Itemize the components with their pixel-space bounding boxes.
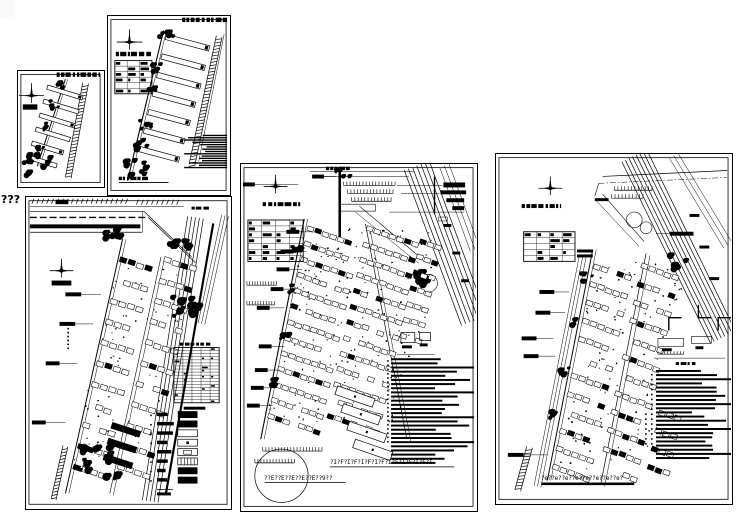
building [43, 99, 79, 114]
title-underline [541, 483, 634, 486]
cad-box [312, 175, 324, 179]
building [152, 91, 196, 108]
leader-label [259, 344, 272, 348]
tree-cluster [123, 158, 150, 179]
cad-box [157, 492, 171, 495]
cad-box [443, 224, 451, 227]
detail-corner [669, 318, 682, 331]
leader-label [539, 290, 554, 294]
leader-label [522, 336, 537, 340]
drawing-title [119, 177, 148, 180]
plan-title [116, 52, 151, 56]
leader-label [32, 421, 46, 425]
tree-cluster [667, 252, 689, 272]
cad-line [69, 239, 126, 493]
detail-label [440, 190, 466, 194]
plan-title [522, 204, 561, 208]
sheet-site-plan-right[interactable] [495, 153, 733, 505]
plan-title [263, 202, 301, 206]
cad-box [56, 200, 69, 204]
building [156, 72, 201, 89]
leader-label [535, 311, 550, 315]
sheet-site-plan-right-drawing [496, 154, 731, 503]
north-arrow-icon [19, 83, 44, 103]
cad-vdots [651, 374, 653, 450]
cad-line [603, 194, 644, 241]
notes-title [676, 362, 696, 365]
cad-rect [658, 338, 684, 346]
north-arrow-icon [264, 175, 288, 194]
cad-box [402, 345, 412, 348]
cad-rect [420, 333, 431, 341]
parking-row [344, 181, 395, 185]
cad-box [577, 250, 593, 253]
building [139, 146, 180, 162]
cad-ticks [263, 447, 322, 451]
cad-trees [548, 409, 558, 420]
cad-vdots [67, 328, 69, 349]
cad-rect [340, 204, 376, 211]
stray-text: ??? [1, 193, 20, 206]
cad-box [662, 348, 672, 351]
cad-band [198, 215, 228, 325]
detail-label [446, 198, 464, 202]
parking-row [352, 197, 391, 201]
leader-label [60, 322, 76, 326]
cad-box [243, 182, 255, 186]
scale-label [52, 281, 72, 286]
cad-ticks [247, 281, 277, 285]
building [148, 109, 191, 125]
cad-speckle [74, 268, 186, 466]
cad-line [597, 201, 639, 246]
cad-ticks [247, 301, 275, 305]
building [35, 127, 70, 142]
cad-box [184, 407, 206, 410]
inner-border [499, 158, 728, 500]
cad-box [420, 343, 428, 346]
leader-label [46, 361, 60, 365]
leader-label [508, 453, 524, 457]
detail-corner [698, 305, 711, 318]
building [143, 128, 185, 144]
cad-vdots [645, 413, 647, 444]
cad-dash [192, 207, 209, 210]
sheet-utility-plan-medium-drawing [108, 16, 229, 194]
cad-drawing-workspace: ??? ?I?F?I?F?I?F?I?F?I?F?I?F?I?F?I ??E??… [0, 0, 749, 530]
cad-box [695, 346, 703, 349]
building-outline [353, 439, 393, 460]
leader-label [255, 368, 268, 372]
parking-row [614, 186, 652, 190]
cad-box [699, 246, 709, 249]
cad-rect [692, 336, 712, 343]
leader-label [271, 287, 284, 291]
cad-vdots [387, 360, 389, 442]
cad-speckle [560, 262, 682, 471]
cad-line [595, 183, 599, 196]
sheet-utility-plan-small[interactable] [17, 70, 105, 188]
legend-table [524, 232, 575, 262]
detail-corner [718, 318, 731, 331]
cad-line [547, 250, 592, 481]
scale-label [23, 104, 37, 109]
cad-box [452, 252, 460, 255]
north-arrow-icon [50, 259, 74, 278]
legend-table [115, 61, 152, 94]
cad-box [690, 214, 700, 217]
road-bar [30, 224, 140, 228]
cad-line [603, 171, 727, 177]
leader-label [670, 232, 694, 236]
sheet-site-plan-left[interactable] [25, 196, 232, 510]
leader-label [277, 267, 290, 271]
sheet-utility-plan-medium[interactable] [107, 15, 231, 196]
cad-box [709, 277, 719, 280]
sheet-site-plan-left-drawing [26, 197, 230, 508]
drawing-title-text: ??E??E??E??E??E??9?? [264, 475, 332, 482]
cad-trees [167, 238, 194, 251]
cad-box [461, 279, 469, 282]
legend [157, 411, 197, 483]
leader-label [251, 386, 264, 390]
building-filled [111, 422, 141, 437]
cad-box [577, 254, 593, 257]
drawing-title-text: ?e??e??e??e??e??e??e??e? [541, 475, 623, 482]
sheet-utility-plan-small-drawing [18, 71, 103, 186]
table-title [180, 343, 211, 346]
leader-label [65, 292, 81, 296]
title-strip [57, 72, 100, 76]
building-outline [347, 421, 387, 442]
cad-circle [626, 212, 642, 228]
notes-block [391, 358, 474, 464]
cad-line [144, 212, 191, 257]
building [161, 54, 206, 71]
north-arrow-icon [538, 176, 562, 195]
parking-row [348, 189, 393, 193]
leader-label [524, 354, 539, 358]
survey-ticks [32, 199, 128, 204]
render-artifact [0, 0, 15, 17]
schedule-table [174, 348, 219, 403]
cad-circle [640, 222, 652, 234]
leader-label [257, 306, 270, 310]
legend-table [248, 220, 303, 261]
leader-label [247, 404, 260, 408]
notes-block [184, 135, 227, 168]
north-arrow-icon [117, 29, 142, 49]
cad-ticks [255, 459, 294, 463]
drawing-title-text: ?I?F?I?F?I?F?I?F?I?F?I?F?I?F?I [330, 459, 432, 466]
